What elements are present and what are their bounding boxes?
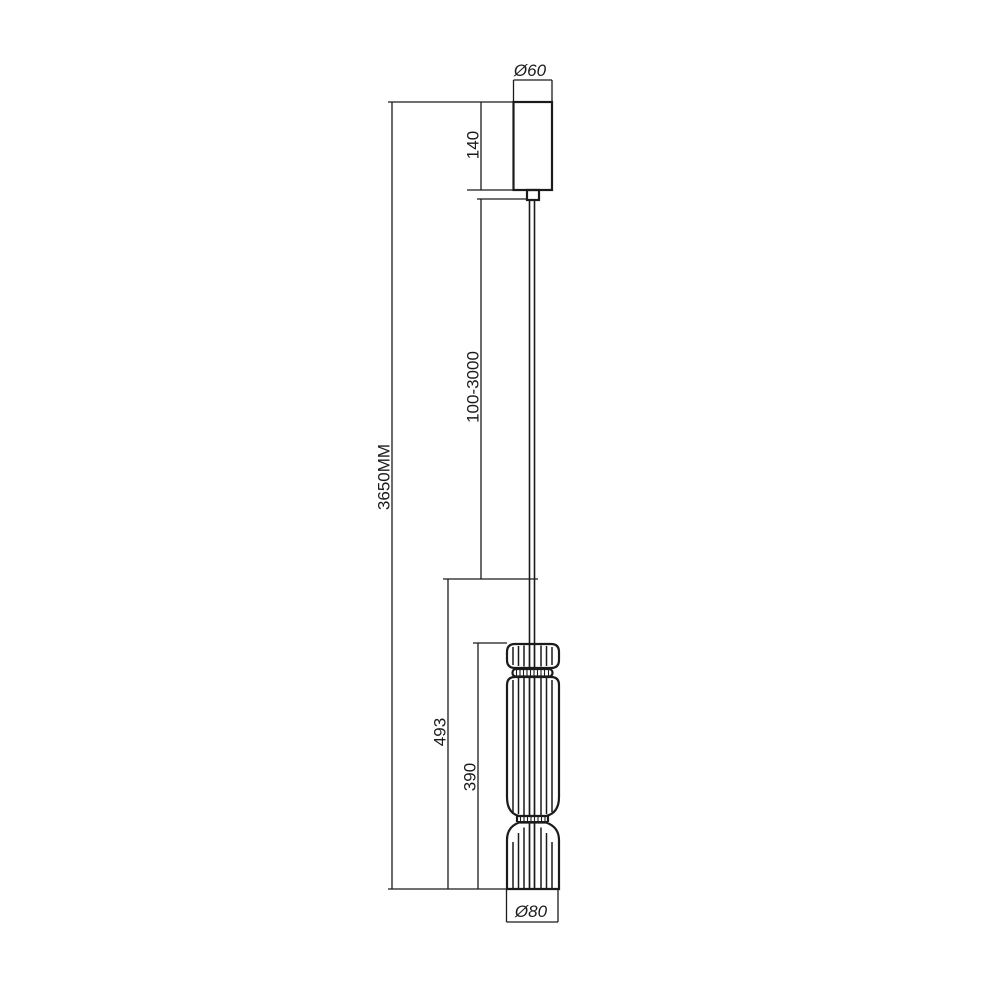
- drawing-canvas: Ø60 140 100-3000 3650MM 493 390 Ø80: [0, 0, 1000, 1000]
- neck-ring-ticks: [517, 670, 549, 676]
- pendant-lamp-dimension-drawing: Ø60 140 100-3000 3650MM 493 390 Ø80: [0, 0, 1000, 1000]
- label-overall-height: 3650MM: [375, 444, 394, 510]
- canopy-outline: [514, 102, 553, 190]
- top-cap-ribs: [513, 644, 552, 668]
- ceiling-canopy: [514, 102, 553, 200]
- label-suspension-length: 100-3000: [464, 351, 483, 423]
- label-bottom-diameter: Ø80: [514, 902, 548, 921]
- shade-top-cap: [507, 644, 559, 668]
- shade-upper-outline: [507, 677, 559, 816]
- shade-waist-ring: [517, 816, 548, 822]
- shade-body: [507, 677, 559, 889]
- shade-lower-outline: [507, 823, 559, 890]
- neck-ring-outline: [513, 669, 553, 677]
- label-shade-height: 390: [461, 763, 480, 791]
- dimension-lines: [388, 80, 558, 922]
- label-top-diameter: Ø60: [513, 61, 547, 80]
- label-canopy-height: 140: [464, 131, 483, 159]
- label-fixture-length: 493: [431, 718, 450, 746]
- cable-connector: [527, 190, 539, 200]
- shade-lower-ribs: [513, 823, 552, 889]
- shade-neck-ring: [513, 669, 553, 677]
- top-cap-outline: [507, 644, 559, 668]
- suspension-cable: [530, 200, 535, 644]
- shade-upper-ribs: [513, 677, 552, 816]
